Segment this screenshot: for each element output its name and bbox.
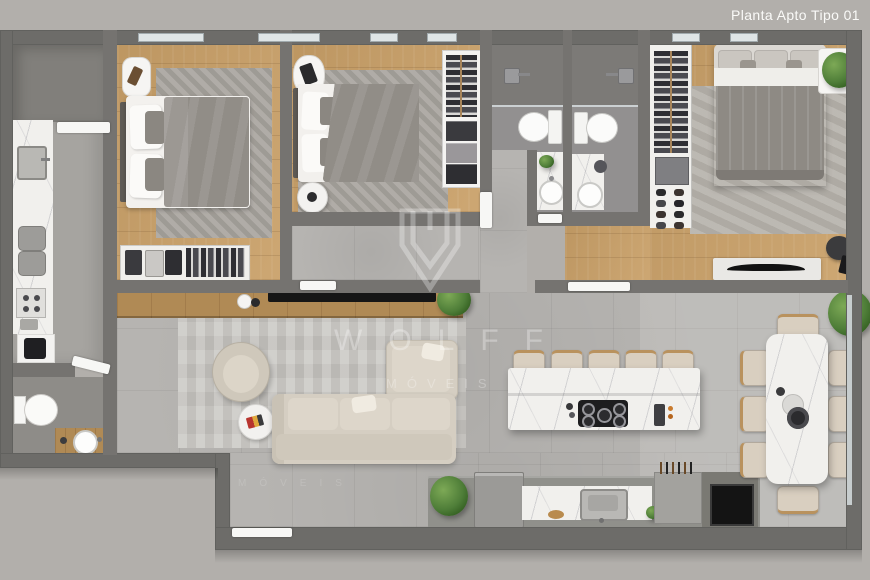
- counter-stool: [18, 251, 46, 276]
- sofa-back: [276, 434, 452, 460]
- wall-bottom: [215, 527, 862, 550]
- watermark-echo: MÓVEIS: [238, 478, 355, 489]
- wood-bowl: [548, 510, 564, 519]
- cooktop: [578, 400, 628, 427]
- service-sliding-door: [57, 122, 110, 133]
- closet-drawer: [655, 157, 689, 185]
- entry-door: [232, 528, 292, 537]
- wall-bottom-left: [0, 453, 230, 468]
- living-side-table: [238, 404, 274, 440]
- suite-duvet-foot: [716, 170, 824, 180]
- living-sofa: [272, 340, 456, 464]
- window: [138, 33, 204, 42]
- island-fruit: [668, 406, 673, 411]
- window: [427, 33, 457, 42]
- burner-icon: [582, 415, 595, 428]
- wall-bathroom2-right: [638, 30, 650, 226]
- lavabo-soap: [60, 437, 67, 444]
- bathroom1-plant: [539, 155, 554, 168]
- bathroom1-sink: [539, 180, 564, 205]
- nightstand-decor: [127, 66, 144, 87]
- wall-left: [0, 30, 13, 468]
- page-title: Planta Apto Tipo 01: [731, 7, 860, 23]
- shower-glass: [492, 105, 563, 107]
- dining-chair: [777, 486, 819, 514]
- watermark-logo-icon: [396, 208, 464, 292]
- tv-sideboard: [117, 290, 463, 318]
- dining-table: [766, 334, 828, 484]
- closet-rail: [670, 51, 672, 153]
- suite-corridor-floor: [565, 226, 650, 282]
- bathroom1-door: [538, 214, 562, 223]
- bedroom1-door: [300, 281, 336, 290]
- shower-head-icon: [504, 68, 520, 84]
- counter-faucet: [599, 518, 604, 523]
- floorplan-render: WOLFF MÓVEIS MÓVEIS Planta Apto Tipo 01: [0, 0, 870, 580]
- bathroom1-toilet: [518, 110, 560, 142]
- armchair-seat: [223, 355, 259, 393]
- tv-screen: [268, 292, 436, 302]
- lavabo-vanity: [55, 428, 107, 453]
- bedroom1-nightstand: [122, 57, 151, 97]
- watermark-subtitle: MÓVEIS: [386, 376, 497, 391]
- bathroom2-sink: [577, 182, 603, 208]
- kitchen-island: [508, 368, 700, 430]
- suite-closet: [650, 45, 692, 228]
- watermark-brand: WOLFF: [334, 324, 569, 358]
- garment-bag: [125, 250, 142, 275]
- sofa-cushion: [288, 398, 338, 430]
- garment-bag: [145, 250, 164, 277]
- bedroom2-side-table: [297, 182, 328, 213]
- bed1-duvet-fold: [164, 97, 188, 207]
- lavabo-toilet: [14, 394, 58, 424]
- suite-soundbar: [727, 264, 805, 271]
- service-room-floor: [13, 45, 103, 122]
- bathroom1-shower-floor: [492, 45, 563, 107]
- burner-dot: [23, 295, 29, 301]
- sink-basin: [588, 495, 618, 511]
- garment-bag: [165, 250, 182, 275]
- utensils: [660, 462, 694, 474]
- window: [672, 33, 700, 42]
- side-table-decor: [307, 192, 317, 202]
- bed1-accent-pillow: [145, 158, 165, 191]
- bedroom2-wardrobe: [442, 50, 482, 188]
- counter-plant: [430, 476, 468, 516]
- island-edge-line: [508, 393, 700, 396]
- shower-head-icon: [618, 68, 634, 84]
- wardrobe-rail: [460, 55, 462, 117]
- exterior-shadow: [215, 550, 862, 563]
- window: [258, 33, 320, 42]
- wall-kitchen-lavabo: [13, 363, 75, 377]
- wardrobe-drawer: [446, 164, 477, 184]
- wall-bathrooms-center: [563, 30, 572, 226]
- wardrobe-drawer: [446, 143, 477, 163]
- island-decor-dot: [569, 412, 575, 418]
- shelf-decor: [299, 62, 318, 85]
- shower-glass: [572, 105, 638, 107]
- counter-stool: [18, 226, 46, 251]
- suite-pillow: [754, 50, 788, 70]
- suite-bed: [714, 44, 826, 186]
- decor-bowl: [251, 298, 260, 307]
- kitchen-small-appliance: [20, 319, 38, 330]
- bedroom2-door: [480, 192, 492, 228]
- burner-icon: [597, 408, 612, 423]
- suite-duvet: [716, 86, 824, 174]
- kitchen-sink: [17, 146, 47, 180]
- burner-icon: [613, 415, 626, 428]
- exterior-shadow: [0, 468, 218, 480]
- counter-sink: [580, 489, 628, 521]
- suite-sheet: [714, 68, 826, 86]
- magazines: [246, 414, 264, 429]
- shoe-rack: [656, 189, 666, 196]
- window-right-glass: [847, 295, 852, 505]
- lavabo-faucet: [97, 437, 102, 442]
- bed1-accent-pillow: [145, 111, 165, 144]
- window: [370, 33, 398, 42]
- wall-service-divider: [103, 30, 117, 455]
- table-cup: [776, 387, 785, 396]
- island-decor-dot: [566, 403, 573, 410]
- bedroom1-bed: [120, 96, 250, 208]
- coffee-station: [17, 334, 55, 363]
- bed2-duvet: [323, 84, 419, 182]
- wall-vanity-nook: [527, 150, 537, 212]
- wall-bedroom-divider: [280, 30, 292, 280]
- wall-bedroom2-right: [480, 30, 492, 192]
- sofa-pillow: [351, 394, 377, 413]
- bathroom2-toilet: [574, 112, 616, 142]
- bedroom2-bed: [293, 84, 419, 182]
- toilet-bowl: [586, 113, 618, 143]
- island-board: [654, 404, 665, 426]
- oven-door: [710, 484, 754, 526]
- suite-door: [568, 282, 630, 291]
- shower-arm: [518, 73, 530, 76]
- living-armchair: [212, 342, 270, 402]
- hanging-clothes: [186, 248, 245, 277]
- bathroom1-faucet: [549, 176, 554, 181]
- kitchen-cooktop: [16, 288, 46, 318]
- table-bowl: [787, 407, 809, 429]
- lavabo-basin: [73, 430, 98, 455]
- window: [730, 33, 758, 42]
- toilet-bowl: [518, 112, 550, 142]
- island-fruit: [668, 414, 673, 419]
- wardrobe-drawer: [446, 121, 477, 141]
- decor-bowl: [237, 294, 252, 309]
- toilet-tank: [548, 110, 562, 144]
- shower-arm: [606, 73, 618, 76]
- utensil-station: [654, 472, 702, 524]
- toilet-bowl: [24, 394, 58, 426]
- oven-tower: [702, 472, 758, 528]
- bedroom1-dresser: [120, 245, 250, 281]
- bathroom2-mirror: [594, 160, 607, 173]
- kitchen-faucet: [41, 158, 50, 161]
- sofa-cushion: [392, 398, 450, 430]
- coffee-machine: [24, 338, 46, 359]
- refrigerator: [474, 472, 524, 528]
